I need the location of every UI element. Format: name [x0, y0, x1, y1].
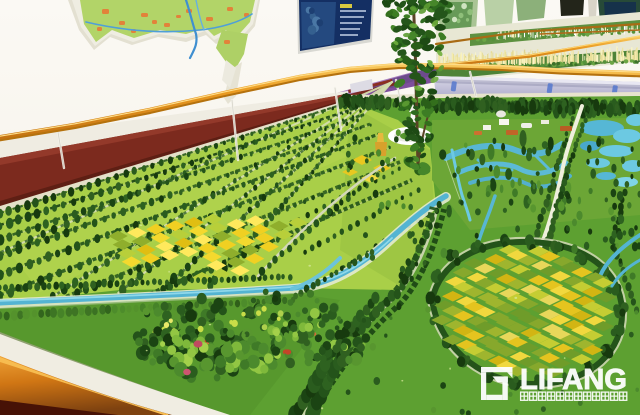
svg-text:LIFANG: LIFANG [520, 364, 627, 396]
